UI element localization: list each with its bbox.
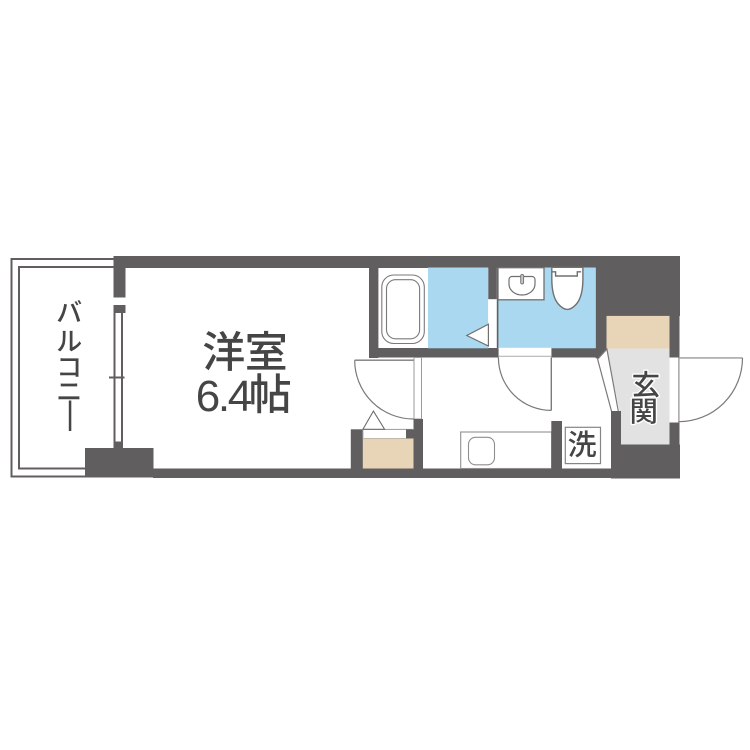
svg-text:6.4: 6.4: [196, 372, 252, 421]
